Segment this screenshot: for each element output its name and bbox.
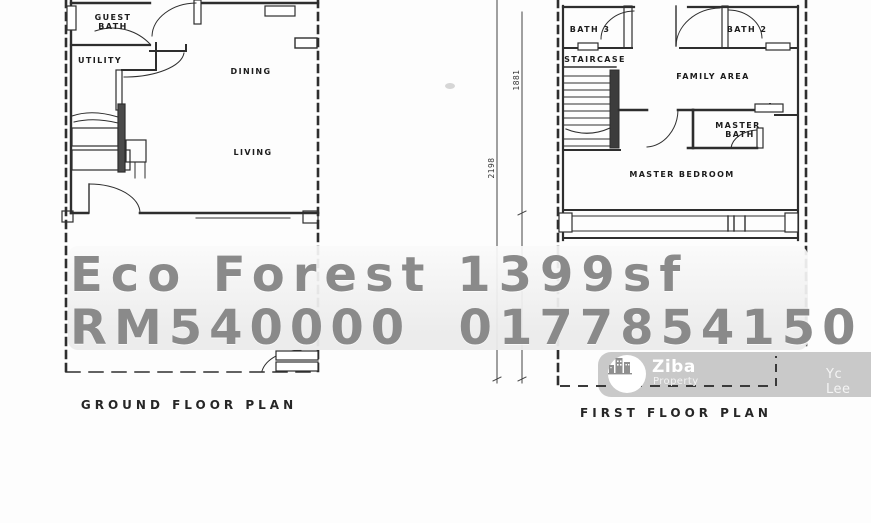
ziba-logo: [608, 355, 646, 393]
room-label-living: LIVING: [234, 148, 273, 158]
room-label-family-area: FAMILY AREA: [676, 72, 750, 82]
room-label-guest-bath-2: BATH: [98, 22, 127, 32]
buildings-icon: [608, 355, 632, 375]
floor-plan-image: 2198 1881: [0, 0, 871, 523]
room-label-bath3: BATH 3: [570, 25, 611, 35]
room-label-bath2: BATH 2: [727, 25, 768, 35]
room-label-staircase: STAIRCASE: [564, 55, 626, 65]
room-label-master-bath-2: BATH: [725, 130, 754, 140]
first-floor-caption: FIRST FLOOR PLAN: [580, 406, 772, 420]
watermark-brand-sub: Property: [653, 376, 699, 387]
overlay-price-phone: RM540000 0177854150: [70, 304, 863, 352]
room-label-utility: UTILITY: [78, 56, 122, 66]
watermark-agent: Yc Lee: [826, 367, 871, 397]
room-label-master-bedroom: MASTER BEDROOM: [629, 170, 734, 180]
overlay-title: Eco Forest 1399sf: [70, 251, 688, 299]
ground-floor-caption: GROUND FLOOR PLAN: [81, 398, 297, 412]
room-label-dining: DINING: [231, 67, 272, 77]
watermark-brand: Ziba: [652, 357, 696, 377]
